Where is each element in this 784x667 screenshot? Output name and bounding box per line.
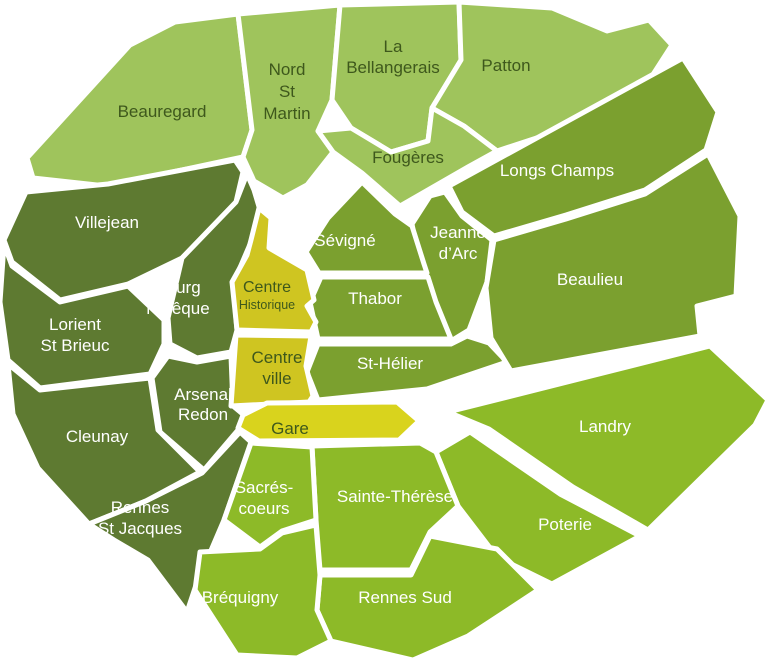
- district-thabor[interactable]: [310, 277, 451, 339]
- rennes-district-map: BeauregardNordStMartinLaBellangeraisPatt…: [0, 0, 784, 667]
- district-centre-ville[interactable]: [231, 335, 313, 406]
- district-beauregard[interactable]: [27, 14, 252, 186]
- district-gare[interactable]: [238, 402, 419, 441]
- district-st-helier[interactable]: [307, 336, 507, 400]
- district-map-canvas: BeauregardNordStMartinLaBellangeraisPatt…: [0, 0, 784, 667]
- district-nord-st-martin[interactable]: [238, 5, 340, 198]
